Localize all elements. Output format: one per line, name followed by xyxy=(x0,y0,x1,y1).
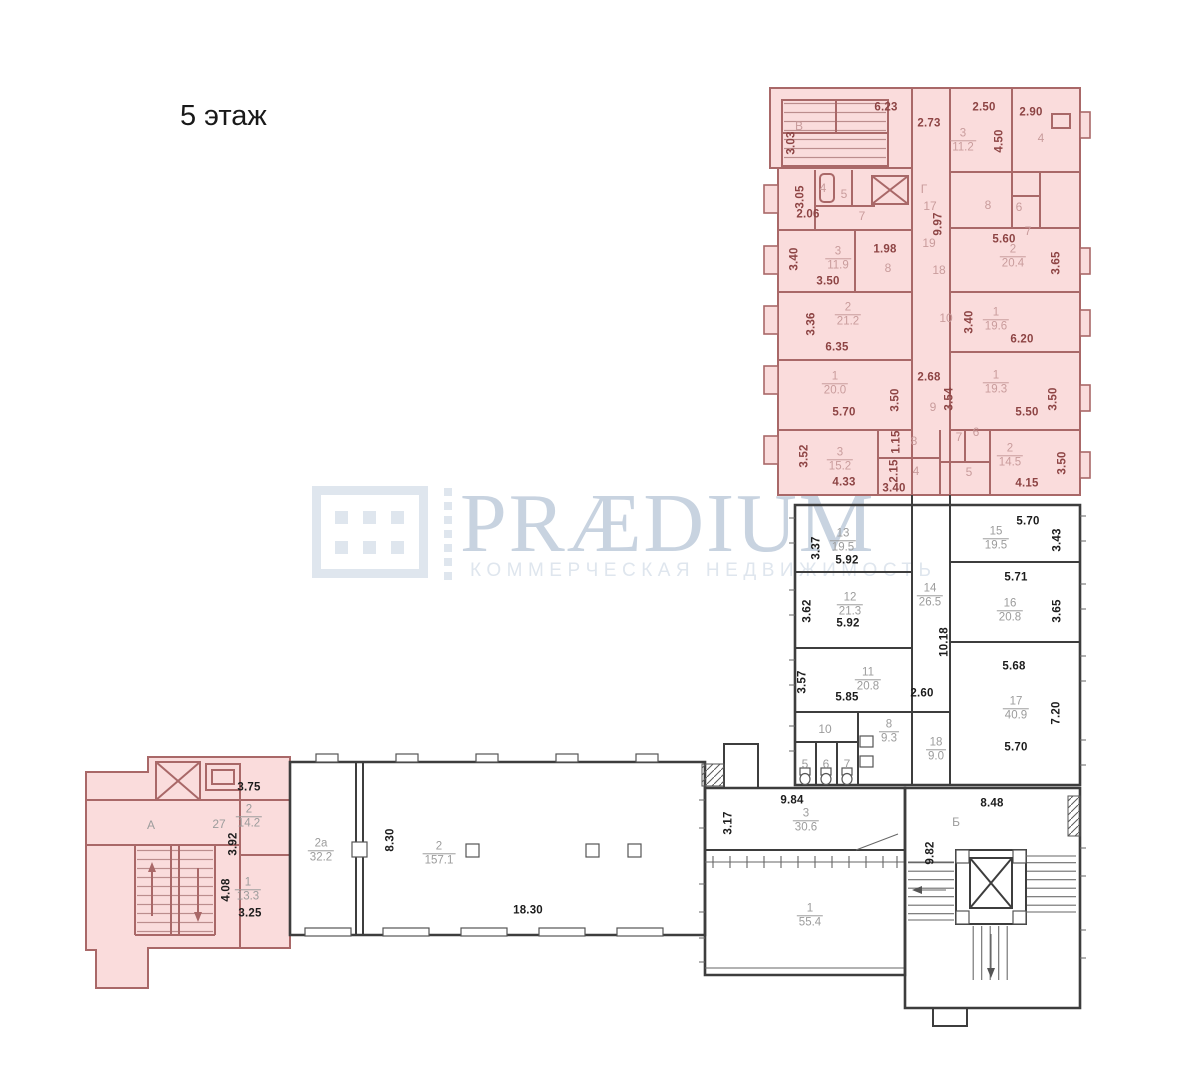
dimension-label: 3.54 xyxy=(944,387,956,410)
room-area-label: 1426.5 xyxy=(917,582,943,609)
room-area-label: 315.2 xyxy=(827,446,853,473)
room-number-label: 5 xyxy=(841,188,848,200)
room-area-value: 55.4 xyxy=(797,916,823,930)
dimension-label: 3.50 xyxy=(816,276,839,288)
room-area-label: 214.2 xyxy=(236,803,262,830)
dimension-label: 5.70 xyxy=(1004,742,1027,754)
room-area-value: 157.1 xyxy=(423,854,456,868)
room-number: 1 xyxy=(832,370,838,382)
room-area-value: 19.5 xyxy=(830,541,856,555)
room-number: 1 xyxy=(993,306,999,318)
room-number: 8 xyxy=(886,718,892,730)
dimension-label: 3.40 xyxy=(882,483,905,495)
room-number-label: А xyxy=(147,819,155,831)
room-area-label: 214.5 xyxy=(997,442,1023,469)
room-area-value: 20.8 xyxy=(997,611,1023,625)
room-area-value: 21.3 xyxy=(837,605,863,619)
dimension-label: 3.36 xyxy=(806,312,818,335)
dimension-label: 3.40 xyxy=(964,310,976,333)
dimension-label: 3.03 xyxy=(786,131,798,154)
room-area-value: 40.9 xyxy=(1003,709,1029,723)
room-number: 2а xyxy=(315,837,328,849)
dimension-label: 2.60 xyxy=(910,688,933,700)
room-area-label: 1620.8 xyxy=(997,597,1023,624)
room-number-label: 4 xyxy=(1038,132,1045,144)
dimension-label: 10.18 xyxy=(939,627,951,657)
room-number-label: 27 xyxy=(212,818,225,830)
dimension-label: 5.71 xyxy=(1004,572,1027,584)
dimension-label: 2.50 xyxy=(972,102,995,114)
dimension-label: 3.52 xyxy=(799,444,811,467)
dimension-label: 3.62 xyxy=(802,599,814,622)
floor-title: 5 этаж xyxy=(180,100,267,133)
dimension-label: 3.92 xyxy=(228,832,240,855)
room-area-label: 113.3 xyxy=(235,876,261,903)
room-number-label: 7 xyxy=(844,758,851,770)
dimension-label: 5.50 xyxy=(1015,407,1038,419)
room-number-label: 17 xyxy=(923,200,936,212)
room-area-value: 9.3 xyxy=(879,732,899,746)
room-number-label: 6 xyxy=(1016,201,1023,213)
dimension-label: 18.30 xyxy=(513,905,543,917)
room-area-label: 1519.5 xyxy=(983,525,1009,552)
dimension-label: 5.68 xyxy=(1002,661,1025,673)
room-area-label: 1221.3 xyxy=(837,591,863,618)
room-number: 16 xyxy=(1004,597,1017,609)
room-number: 14 xyxy=(924,582,937,594)
dimension-label: 3.57 xyxy=(797,670,809,693)
dimension-label: 9.82 xyxy=(925,841,937,864)
dimension-label: 9.97 xyxy=(933,212,945,235)
room-number: 2 xyxy=(1010,243,1016,255)
room-number: 15 xyxy=(990,525,1003,537)
room-area-value: 19.5 xyxy=(983,539,1009,553)
dimension-label: 3.40 xyxy=(789,247,801,270)
room-area-label: 311.9 xyxy=(825,245,851,272)
room-area-label: 220.4 xyxy=(1000,243,1026,270)
room-number-label: 10 xyxy=(939,312,952,324)
room-number: 2 xyxy=(1007,442,1013,454)
room-area-label: 1120.8 xyxy=(855,666,881,693)
dimension-label: 3.75 xyxy=(237,782,260,794)
room-number-label: 18 xyxy=(932,264,945,276)
room-area-label: 221.2 xyxy=(835,301,861,328)
room-number-label: 5 xyxy=(966,466,973,478)
room-area-value: 32.2 xyxy=(308,851,334,865)
room-number-label: Б xyxy=(952,816,960,828)
dimension-label: 3.25 xyxy=(238,908,261,920)
floor-plan-page: PRÆDIUM КОММЕРЧЕСКАЯ НЕДВИЖИМОСТЬ xyxy=(0,0,1200,1071)
room-area-value: 26.5 xyxy=(917,596,943,610)
room-number: 3 xyxy=(837,446,843,458)
dimension-label: 3.50 xyxy=(1057,451,1069,474)
dimension-label: 8.30 xyxy=(385,828,397,851)
dimension-label: 2.73 xyxy=(917,118,940,130)
room-area-value: 20.8 xyxy=(855,680,881,694)
dimension-label: 2.90 xyxy=(1019,107,1042,119)
room-area-label: 2157.1 xyxy=(423,840,456,867)
dimension-label: 1.15 xyxy=(891,430,903,453)
dimension-label: 5.92 xyxy=(835,555,858,567)
dimension-label: 4.08 xyxy=(221,878,233,901)
dimension-label: 6.35 xyxy=(825,342,848,354)
room-number-label: 10 xyxy=(818,723,831,735)
room-area-label: 1740.9 xyxy=(1003,695,1029,722)
room-area-value: 19.3 xyxy=(983,383,1009,397)
labels-layer: 6.232.732.502.903.034.503.052.069.975.60… xyxy=(0,0,1200,1071)
room-number-label: 7 xyxy=(1025,225,1032,237)
room-area-label: 119.3 xyxy=(983,369,1009,396)
room-number-label: 8 xyxy=(985,199,992,211)
room-number-label: 19 xyxy=(922,237,935,249)
room-area-value: 9.0 xyxy=(926,750,946,764)
room-area-label: 2а32.2 xyxy=(308,837,334,864)
dimension-label: 2.68 xyxy=(917,372,940,384)
dimension-label: 3.05 xyxy=(795,185,807,208)
room-area-value: 14.2 xyxy=(236,817,262,831)
room-number-label: 8 xyxy=(885,262,892,274)
dimension-label: 4.50 xyxy=(994,129,1006,152)
room-number: 3 xyxy=(960,127,966,139)
room-number-label: 4 xyxy=(913,465,920,477)
dimension-label: 5.92 xyxy=(836,618,859,630)
dimension-label: 5.70 xyxy=(832,407,855,419)
dimension-label: 3.17 xyxy=(723,811,735,834)
room-number: 12 xyxy=(844,591,857,603)
dimension-label: 3.50 xyxy=(890,388,902,411)
room-area-label: 120.0 xyxy=(822,370,848,397)
dimension-label: 7.20 xyxy=(1051,701,1063,724)
room-area-label: 119.6 xyxy=(983,306,1009,333)
dimension-label: 3.37 xyxy=(811,536,823,559)
room-number-label: 6 xyxy=(973,426,980,438)
room-number: 3 xyxy=(835,245,841,257)
room-area-label: 155.4 xyxy=(797,902,823,929)
room-area-label: 330.6 xyxy=(793,807,819,834)
dimension-label: 3.65 xyxy=(1051,251,1063,274)
room-number-label: В xyxy=(795,120,803,132)
room-number-label: 8 xyxy=(911,435,918,447)
room-area-label: 89.3 xyxy=(879,718,899,745)
room-number-label: 7 xyxy=(956,431,963,443)
dimension-label: 3.50 xyxy=(1048,387,1060,410)
room-area-value: 14.5 xyxy=(997,456,1023,470)
room-number-label: 6 xyxy=(823,758,830,770)
dimension-label: 2.15 xyxy=(889,459,901,482)
room-area-value: 11.2 xyxy=(950,141,976,155)
room-area-label: 1319.5 xyxy=(830,527,856,554)
dimension-label: 3.43 xyxy=(1052,528,1064,551)
dimension-label: 1.98 xyxy=(873,244,896,256)
room-number: 2 xyxy=(436,840,442,852)
room-number: 2 xyxy=(845,301,851,313)
room-number-label: 5 xyxy=(802,758,809,770)
room-number-label: 4 xyxy=(820,182,827,194)
dimension-label: 8.48 xyxy=(980,798,1003,810)
dimension-label: 5.85 xyxy=(835,692,858,704)
room-area-value: 20.0 xyxy=(822,384,848,398)
room-number: 3 xyxy=(803,807,809,819)
room-area-value: 30.6 xyxy=(793,821,819,835)
room-number-label: 9 xyxy=(930,401,937,413)
room-number: 1 xyxy=(807,902,813,914)
room-area-value: 11.9 xyxy=(825,259,851,273)
room-number-label: Г xyxy=(921,183,928,195)
dimension-label: 2.06 xyxy=(796,209,819,221)
room-number-label: 7 xyxy=(859,210,866,222)
room-number: 1 xyxy=(993,369,999,381)
room-area-value: 15.2 xyxy=(827,460,853,474)
room-number: 13 xyxy=(837,527,850,539)
room-number: 17 xyxy=(1010,695,1023,707)
dimension-label: 6.23 xyxy=(874,102,897,114)
room-number: 18 xyxy=(930,736,943,748)
room-area-label: 311.2 xyxy=(950,127,976,154)
room-area-value: 21.2 xyxy=(835,315,861,329)
room-area-value: 13.3 xyxy=(235,890,261,904)
room-number: 2 xyxy=(246,803,252,815)
dimension-label: 6.20 xyxy=(1010,334,1033,346)
dimension-label: 4.33 xyxy=(832,477,855,489)
room-area-value: 20.4 xyxy=(1000,257,1026,271)
room-area-value: 19.6 xyxy=(983,320,1009,334)
dimension-label: 9.84 xyxy=(780,795,803,807)
dimension-label: 3.65 xyxy=(1052,599,1064,622)
dimension-label: 4.15 xyxy=(1015,478,1038,490)
room-number: 1 xyxy=(245,876,251,888)
room-area-label: 189.0 xyxy=(926,736,946,763)
dimension-label: 5.70 xyxy=(1016,516,1039,528)
room-number: 11 xyxy=(862,666,874,678)
